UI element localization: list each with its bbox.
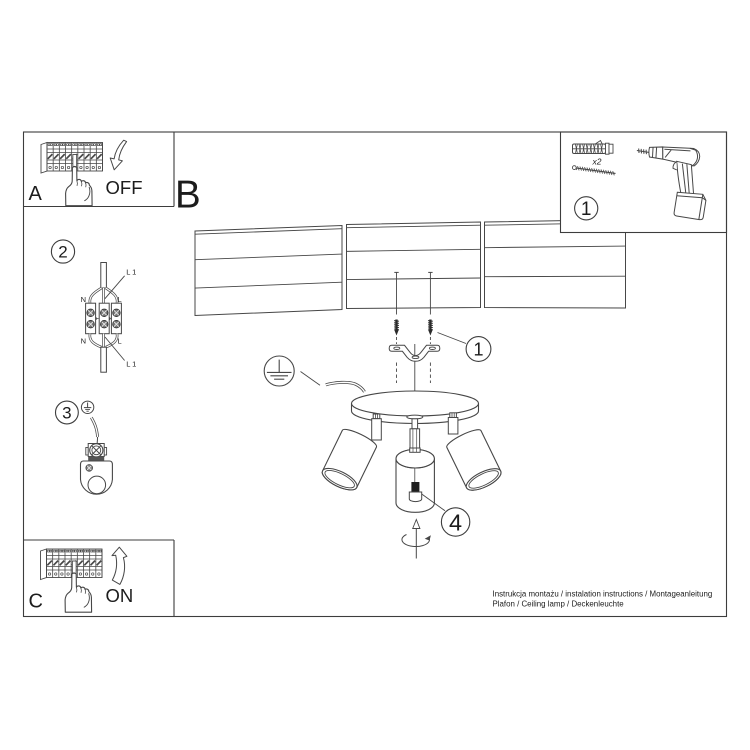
svg-text:1: 1 <box>581 199 592 220</box>
svg-text:1: 1 <box>473 339 483 359</box>
svg-text:B: B <box>175 174 201 217</box>
svg-text:ON: ON <box>106 585 134 606</box>
svg-text:Instrukcja montażu / instalati: Instrukcja montażu / instalation instruc… <box>493 590 713 599</box>
svg-text:OFF: OFF <box>106 177 143 198</box>
svg-text:2: 2 <box>58 243 67 262</box>
svg-text:C: C <box>29 591 43 613</box>
svg-text:N: N <box>81 337 86 346</box>
svg-text:N: N <box>81 295 86 304</box>
svg-text:4: 4 <box>449 509 462 535</box>
svg-text:3: 3 <box>62 404 71 423</box>
svg-text:L: L <box>118 337 122 346</box>
svg-text:L 1: L 1 <box>126 360 136 369</box>
svg-text:x2: x2 <box>592 157 602 167</box>
svg-text:L 1: L 1 <box>126 268 136 277</box>
svg-text:A: A <box>29 183 43 205</box>
svg-text:Plafon / Ceiling lamp / Decken: Plafon / Ceiling lamp / Deckenleuchte <box>493 600 625 609</box>
svg-text:L: L <box>118 295 122 304</box>
